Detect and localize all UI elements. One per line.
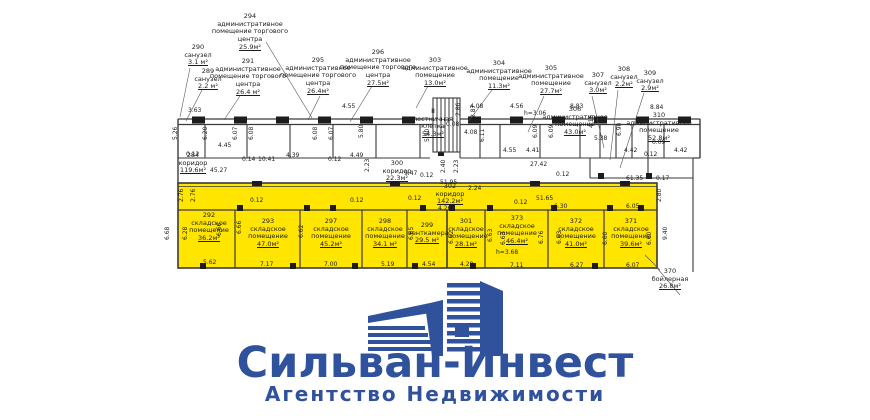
dimension-label: 3.63: [188, 107, 201, 114]
dimension-label: 6.28: [182, 227, 189, 240]
dimension-label: 6.63: [556, 231, 563, 244]
dimension-label: 7.17: [260, 261, 273, 268]
dimension-label: 5.80: [358, 125, 365, 138]
dimension-label: 27.42: [530, 161, 547, 168]
dimension-label: 2.80: [656, 189, 663, 202]
dimension-label: 6.08: [248, 127, 255, 140]
dimension-label: 5.26: [172, 127, 179, 140]
dimension-label: h=3.68: [496, 249, 518, 256]
dimension-label: 4.26: [438, 205, 451, 212]
dimension-label: 6.90: [616, 123, 623, 136]
dimension-label: 4.42: [674, 147, 687, 154]
dimension-label: 51.65: [536, 195, 553, 202]
room-label-309: 309санузел2.9м²: [630, 70, 670, 93]
dimension-label: 10.41: [258, 156, 275, 163]
dimension-label: 51.95: [440, 179, 457, 186]
dimension-label: 6.60: [602, 232, 609, 245]
logo-subtitle: Агентство Недвижимости: [0, 384, 870, 404]
dimension-label: 0.09: [652, 139, 665, 146]
dimension-label: 4.45: [218, 142, 231, 149]
dimension-label: 0.17: [656, 175, 669, 182]
room-label-292: 292складское помещение36.2м²: [184, 212, 234, 243]
dimension-label: 6.62: [448, 231, 455, 244]
room-label-370: 370бойлерная26.8м²: [644, 268, 696, 291]
dimension-label: 6.30: [554, 203, 567, 210]
logo-title: Сильван-Инвест: [0, 342, 870, 385]
dimension-label: 4.16: [588, 115, 595, 128]
dimension-label: 4.42: [624, 147, 637, 154]
dimension-label: 2.87: [470, 105, 477, 118]
dimension-label: 6.11: [479, 129, 486, 142]
dimension-label: 4.56: [510, 103, 523, 110]
dimension-label: 0.12: [186, 151, 199, 158]
dimension-label: 9.40: [662, 227, 669, 240]
room-label-297: 297складское помещение45.2м²: [302, 218, 360, 249]
dimension-label: h=3.06: [524, 110, 546, 117]
dimension-label: 6.27: [570, 262, 583, 269]
dimension-label: 4.54: [422, 261, 435, 268]
dimension-label: 4.39: [286, 152, 299, 159]
dimension-label: 6.09: [548, 125, 555, 138]
room-label-293: 293складское помещение47.0м²: [238, 218, 298, 249]
dimension-label: 4.55: [342, 103, 355, 110]
dimension-label: 6.20: [202, 127, 209, 140]
dimension-label: 4.49: [350, 152, 363, 159]
floor-plan-page: 290санузел3.1 м² 289санузел2.2 м² 294адм…: [0, 0, 870, 420]
dimension-label: 0.12: [420, 172, 433, 179]
dimension-label: 0.12: [408, 195, 421, 202]
dimension-label: 6.07: [626, 262, 639, 269]
dimension-label: 2.40: [440, 160, 447, 173]
dimension-label: 45.27: [210, 167, 227, 174]
dimension-label: 0.12: [350, 197, 363, 204]
dimension-label: 4.41: [526, 147, 539, 154]
dimension-label: 6.66: [236, 221, 243, 234]
room-label-305: 305административное помещение27.7м²: [514, 65, 588, 96]
dimension-label: 6.08: [312, 127, 319, 140]
dimension-label: 5.38: [594, 135, 607, 142]
dimension-label: 8.84: [650, 104, 663, 111]
dimension-label: 6.63: [487, 229, 494, 242]
dimension-label: 0.12: [556, 171, 569, 178]
dimension-label: 6.09: [532, 125, 539, 138]
room-label-294: 294административное помещение торгового …: [210, 13, 290, 51]
dimension-label: 6.62: [298, 225, 305, 238]
dimension-label: 6.60: [646, 232, 653, 245]
dimension-label: 0.12: [250, 197, 263, 204]
dimension-label: 0.12: [514, 199, 527, 206]
dimension-label: 2.24: [468, 185, 481, 192]
dimension-label: 6.05: [626, 203, 639, 210]
dimension-label: 0.12: [644, 151, 657, 158]
dimension-label: 6.68: [164, 227, 171, 240]
dimension-label: 8.83: [570, 103, 583, 110]
dimension-label: 6.07: [328, 127, 335, 140]
dimension-label: 9.47: [404, 170, 417, 177]
dimension-label: 6.65: [408, 227, 415, 240]
dimension-label: 4.55: [503, 147, 516, 154]
dimension-label: 2.23: [364, 159, 371, 172]
room-label-303: 303административное помещение13.0м²: [398, 57, 472, 88]
dimension-label: 2.76: [190, 189, 197, 202]
dimension-label: 7.11: [510, 262, 523, 269]
dimension-label: 4.28: [460, 261, 473, 268]
dimension-label: 61.35: [626, 175, 643, 182]
room-label-298: 298складское помещение34.1 м²: [364, 218, 406, 249]
dimension-label: 6.66: [216, 223, 223, 236]
dimension-label: 7.00: [324, 261, 337, 268]
dimension-label: 6.76: [538, 231, 545, 244]
dimension-label: 0.12: [328, 156, 341, 163]
dimension-label: 2.86: [455, 103, 462, 116]
dimension-label: 6.07: [232, 127, 239, 140]
dimension-label: 0.14: [242, 156, 255, 163]
room-label-291: 291административное помещение торгового …: [208, 58, 288, 96]
dimension-label: 4.08: [464, 129, 477, 136]
dimension-label: 5.90: [424, 129, 431, 142]
dimension-label: 2.76: [178, 189, 185, 202]
dimension-label: 0.08: [446, 121, 459, 128]
dimension-label: 6.63: [500, 232, 507, 245]
dimension-label: 5.62: [203, 259, 216, 266]
dimension-label: 5.19: [381, 261, 394, 268]
dimension-label: 2.23: [453, 160, 460, 173]
